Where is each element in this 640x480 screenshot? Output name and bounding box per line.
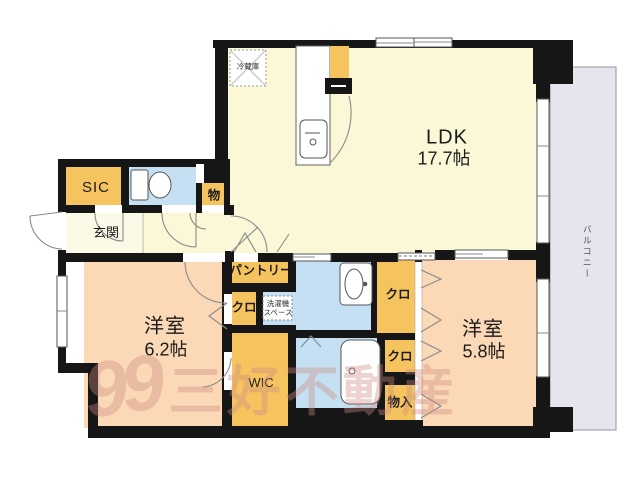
laundry-label-2: スペース (263, 309, 292, 317)
laundry-label-1: 洗濯機 (267, 300, 290, 308)
fridge-label: 冷蔵庫 (237, 63, 260, 71)
toilet-bowl (149, 172, 171, 198)
entrance-opening (57, 212, 66, 250)
bedroom1-label: 洋室 (144, 317, 186, 338)
wall-notch (196, 164, 204, 183)
sic-door-opening (95, 205, 122, 213)
toilet-tank (131, 170, 148, 200)
ldk-label: LDK (426, 128, 468, 149)
bathtub-drain (349, 368, 355, 374)
hall-closet-label: クロ (231, 301, 256, 314)
bedroom2-label: 洋室 (462, 320, 504, 341)
mono-door-opening (202, 205, 224, 213)
bathtub (341, 340, 380, 404)
bedroom1-bay-strip (66, 260, 84, 364)
closet2-label: クロ (387, 350, 412, 363)
corridor-area (140, 208, 230, 255)
kitchen-faucet (310, 139, 316, 145)
balcony-label: バルコニー (581, 225, 590, 280)
bedroom2-balcony-window (537, 279, 549, 377)
mono-label: 物 (208, 189, 221, 202)
monoire-label: 物入 (387, 396, 412, 409)
wic-label: WIC (248, 376, 273, 390)
kitchen-cabinet (330, 46, 349, 78)
ldk-area (228, 46, 540, 255)
bedroom1-door-opening (183, 253, 225, 262)
floorplan-page: LDK 17.7帖 洋室 6.2帖 洋室 5.8帖 玄関 SIC 物 パントリー… (0, 0, 640, 480)
genkan-label: 玄関 (93, 226, 119, 240)
ldk-size-label: 17.7帖 (417, 150, 470, 169)
ldk-balcony-window (537, 99, 549, 243)
bedroom1-size-label: 6.2帖 (144, 341, 187, 360)
pantry-door-opening (234, 253, 258, 262)
bedroom2-size-label: 5.8帖 (462, 343, 505, 362)
washbasin-faucet (363, 282, 367, 286)
closet1-label: クロ (385, 288, 410, 301)
closet-door-track (415, 260, 422, 422)
washbasin-bowl (345, 269, 363, 299)
toilet-door-opening (162, 205, 196, 213)
room-fills (64, 46, 616, 430)
pantry-label: パントリー (229, 264, 292, 277)
sic-label: SIC (82, 180, 110, 196)
